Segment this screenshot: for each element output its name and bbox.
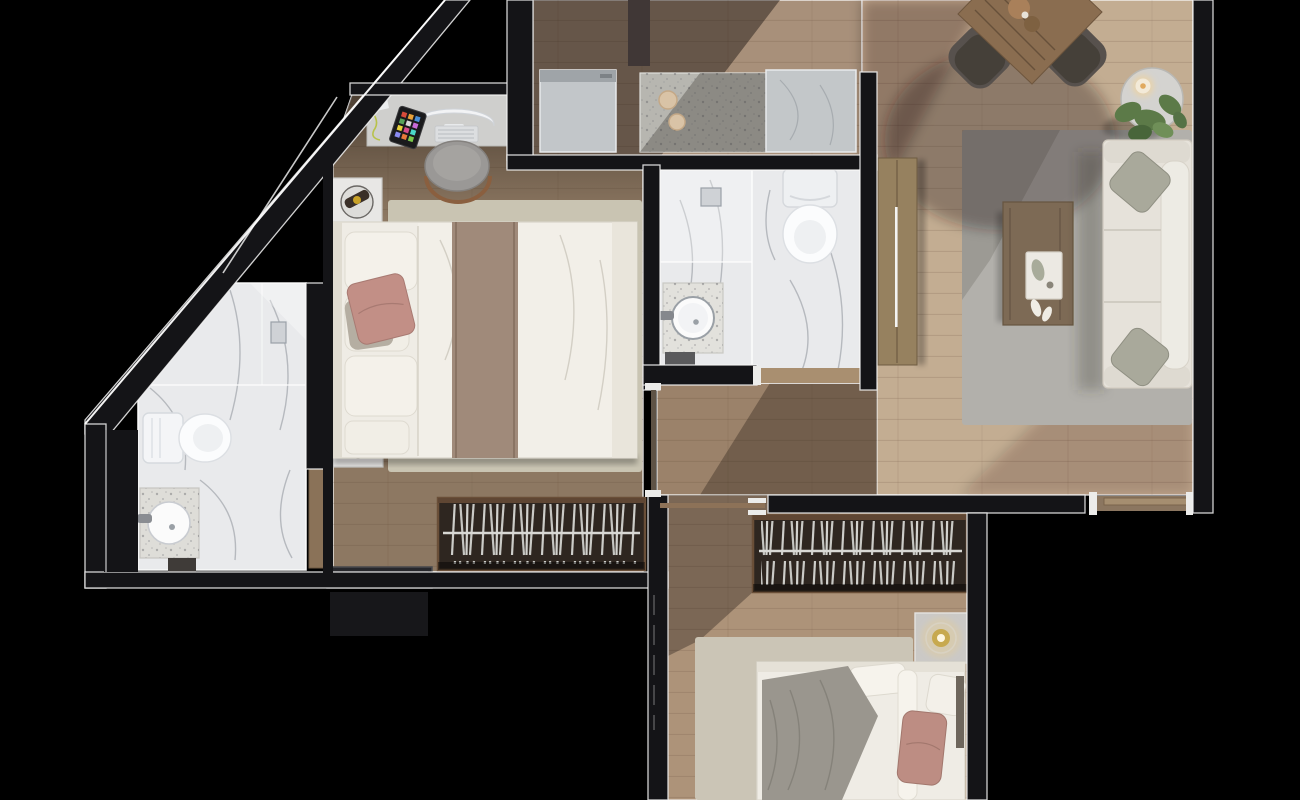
basin	[148, 502, 190, 544]
bedroom2-wardrobe	[753, 515, 967, 592]
foot-fold	[612, 222, 637, 458]
kitchen-counter-right	[766, 70, 856, 152]
tv-cabinet	[878, 158, 925, 365]
cup	[1022, 12, 1029, 19]
wood-bowl-small	[1024, 16, 1040, 32]
wall-left-inner	[104, 430, 138, 572]
bed-frame-gap	[956, 676, 964, 748]
wall-living-bottom	[768, 495, 1085, 513]
wall-bath2-right	[860, 72, 877, 390]
burner	[659, 91, 677, 109]
master-bed	[333, 222, 637, 464]
floor-plan-canvas	[0, 0, 1300, 800]
sofa-back-cushion	[1161, 161, 1189, 369]
burner	[669, 114, 685, 130]
coffee-table	[997, 202, 1073, 325]
kitchen-counter-terrazzo	[640, 73, 766, 152]
wall-living-right	[1193, 0, 1213, 513]
toilet	[783, 169, 837, 263]
wall-kitchen-bottom	[507, 155, 877, 170]
wall-bedroom-left	[323, 150, 333, 574]
bathroom-door-threshold	[760, 368, 860, 383]
wall-bedroom2-left	[648, 495, 668, 800]
hallway-floor	[657, 383, 877, 495]
wall-kitchen-left	[507, 0, 533, 160]
door-jamb	[748, 498, 766, 503]
wall-bottom	[85, 572, 668, 588]
bedroom2-nightstand	[915, 613, 967, 663]
nightstand-top	[332, 178, 382, 227]
wall-left	[85, 424, 106, 588]
pillow	[345, 421, 409, 454]
door-leaf	[1104, 498, 1190, 505]
kitchen-appliance	[540, 70, 616, 152]
hanging-clothes	[761, 521, 959, 585]
headboard	[333, 222, 342, 458]
toilet	[143, 413, 231, 463]
tall-cabinet	[628, 0, 650, 66]
master-wardrobe	[438, 498, 645, 570]
duvet	[418, 223, 637, 457]
bedroom2-bed	[757, 662, 967, 800]
shower-drain	[271, 322, 286, 343]
door-jamb	[1089, 492, 1097, 515]
shower-drain	[701, 188, 721, 206]
balcony-ledge	[330, 592, 428, 636]
wall-bedroom2-right	[967, 513, 987, 800]
door-jamb	[645, 490, 661, 497]
door-track	[651, 390, 656, 492]
door-jamb	[753, 366, 761, 385]
door-jamb	[645, 383, 661, 390]
pillow	[345, 356, 417, 416]
cabinet-handle	[895, 207, 898, 327]
floor-plan-render	[0, 0, 1300, 800]
wall-bath2-left	[643, 165, 660, 390]
bed-runner	[452, 222, 518, 458]
sink-vanity	[658, 283, 723, 353]
wall-bath2-bottom	[643, 365, 757, 385]
door-threshold	[660, 503, 765, 508]
vanity-shadow	[168, 558, 196, 572]
faucet	[137, 514, 152, 523]
door-jamb	[1186, 492, 1193, 515]
pink-pillow	[896, 710, 947, 786]
sofa	[1078, 140, 1192, 390]
door-jamb	[748, 510, 766, 515]
